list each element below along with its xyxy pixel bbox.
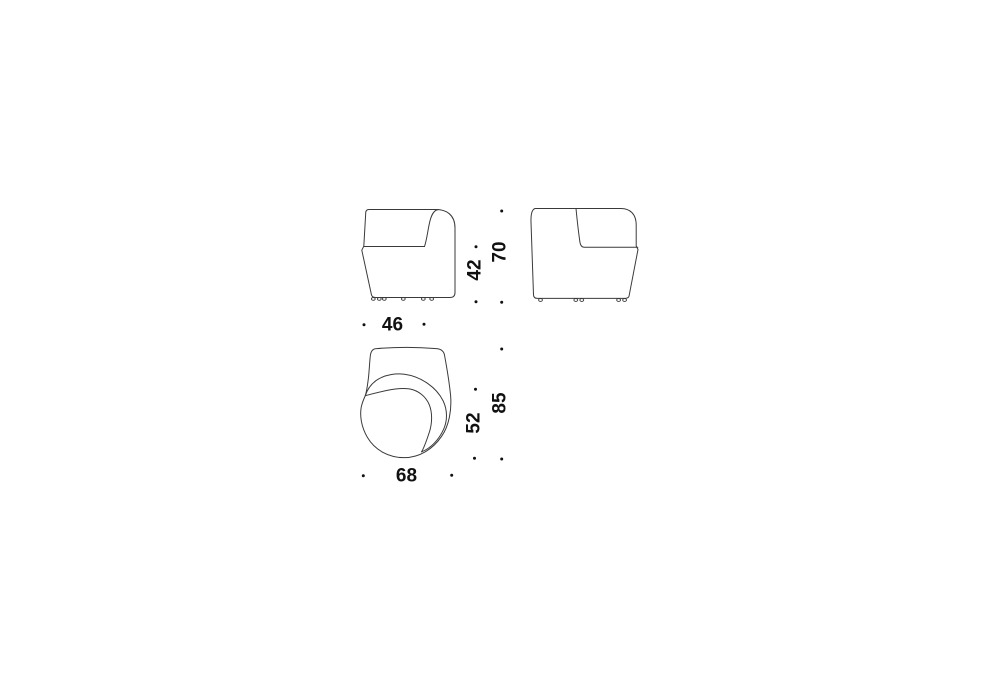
dimension-label-seat-height: 42 bbox=[465, 259, 484, 280]
dimension-label-plan-width: 68 bbox=[396, 466, 417, 485]
dimension-label-overall-depth: 85 bbox=[491, 392, 510, 413]
dimension-label-front-width: 46 bbox=[382, 315, 403, 334]
dimension-dot bbox=[475, 245, 478, 248]
dimension-dot bbox=[473, 457, 476, 460]
dimension-dot bbox=[450, 474, 453, 477]
dimension-dot bbox=[500, 348, 503, 351]
dimension-dot bbox=[500, 210, 503, 213]
dimension-dot bbox=[423, 323, 426, 326]
dimension-dot bbox=[474, 388, 477, 391]
technical-drawing-canvas: 46 42 70 68 52 85 bbox=[0, 0, 1000, 700]
dimension-dot bbox=[363, 323, 366, 326]
dimension-dot bbox=[500, 458, 503, 461]
dimension-label-overall-height: 70 bbox=[491, 242, 510, 263]
dimension-dot bbox=[500, 301, 503, 304]
dimension-dot bbox=[362, 474, 365, 477]
dimension-label-seat-depth: 52 bbox=[464, 412, 483, 433]
dimension-markers bbox=[0, 0, 1000, 700]
dimension-dot bbox=[475, 300, 478, 303]
